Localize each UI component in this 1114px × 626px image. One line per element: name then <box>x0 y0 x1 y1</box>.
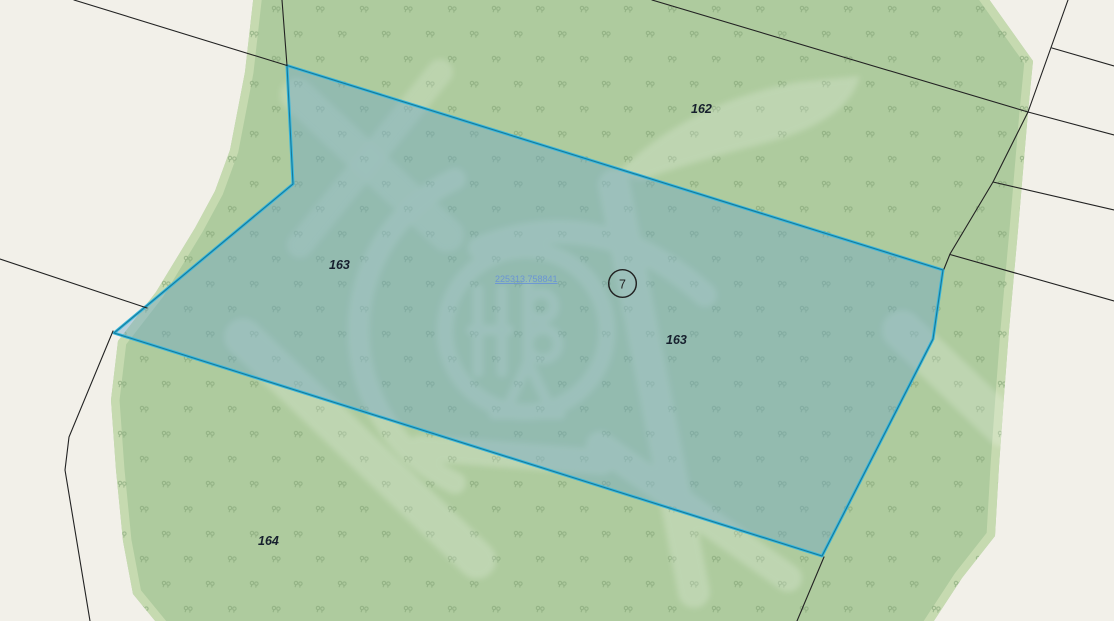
svg-text:164: 164 <box>258 534 279 548</box>
svg-text:163: 163 <box>329 258 350 272</box>
svg-text:163: 163 <box>666 333 687 347</box>
svg-text:162: 162 <box>691 102 712 116</box>
svg-text:225313.758841: 225313.758841 <box>495 274 558 284</box>
svg-text:7: 7 <box>619 278 626 292</box>
